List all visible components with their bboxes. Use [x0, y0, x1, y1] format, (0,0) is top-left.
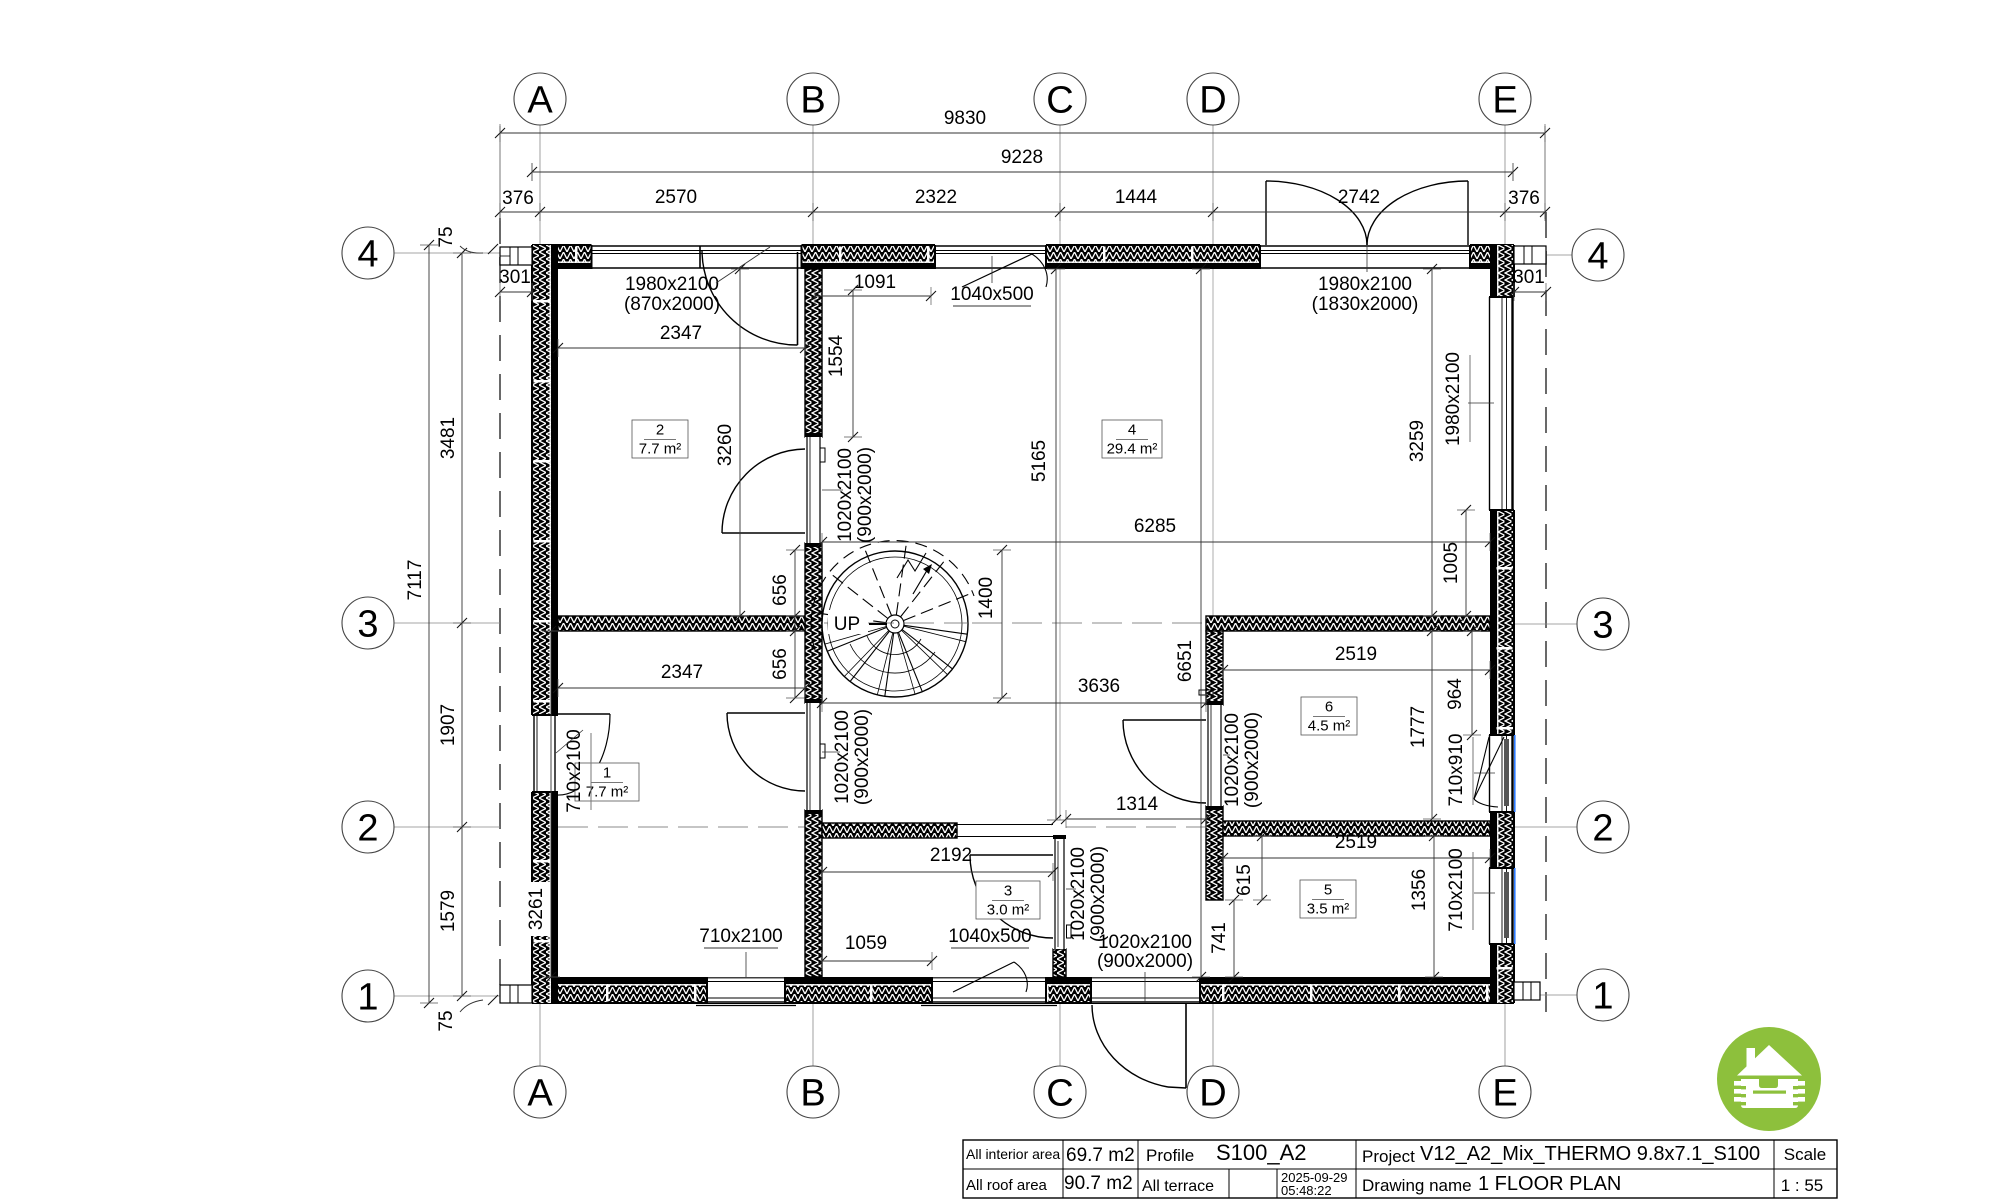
- svg-text:3259: 3259: [1407, 420, 1428, 462]
- svg-text:V12_A2_Mix_THERMO 9.8x7.1_S100: V12_A2_Mix_THERMO 9.8x7.1_S100: [1420, 1143, 1760, 1165]
- svg-text:2347: 2347: [661, 662, 703, 683]
- svg-text:(870x2000): (870x2000): [624, 294, 720, 315]
- svg-text:All roof area: All roof area: [966, 1177, 1048, 1194]
- svg-text:1 : 55: 1 : 55: [1781, 1176, 1824, 1195]
- svg-text:Drawing name: Drawing name: [1362, 1176, 1472, 1195]
- svg-text:(1830x2000): (1830x2000): [1312, 294, 1419, 315]
- svg-text:5: 5: [1324, 882, 1332, 899]
- svg-text:1020x2100: 1020x2100: [1222, 713, 1243, 807]
- svg-text:3: 3: [1592, 604, 1613, 646]
- svg-text:1444: 1444: [1115, 187, 1158, 208]
- svg-text:4: 4: [357, 233, 378, 275]
- svg-text:B: B: [800, 1072, 825, 1114]
- svg-text:UP: UP: [834, 614, 860, 635]
- svg-text:1: 1: [357, 976, 378, 1018]
- svg-text:1005: 1005: [1441, 542, 1462, 584]
- svg-text:3481: 3481: [438, 417, 459, 459]
- svg-text:9228: 9228: [1001, 147, 1043, 168]
- svg-text:1: 1: [603, 765, 611, 782]
- svg-text:75: 75: [436, 226, 457, 247]
- svg-text:Scale: Scale: [1784, 1145, 1827, 1164]
- svg-text:1980x2100: 1980x2100: [625, 274, 719, 295]
- svg-text:7.7 m²: 7.7 m²: [586, 784, 629, 801]
- svg-text:1907: 1907: [438, 704, 459, 746]
- svg-text:2322: 2322: [915, 187, 957, 208]
- svg-text:3636: 3636: [1078, 676, 1120, 697]
- svg-text:05:48:22: 05:48:22: [1281, 1183, 1332, 1198]
- svg-text:7117: 7117: [405, 560, 426, 601]
- svg-text:1020x2100: 1020x2100: [1068, 847, 1089, 941]
- svg-text:1020x2100: 1020x2100: [832, 710, 853, 804]
- svg-text:4: 4: [1128, 422, 1136, 439]
- svg-text:1020x2100: 1020x2100: [1098, 932, 1192, 953]
- svg-text:1020x2100: 1020x2100: [835, 448, 856, 542]
- svg-text:656: 656: [770, 574, 791, 606]
- svg-text:75: 75: [436, 1010, 457, 1031]
- svg-text:1: 1: [1592, 975, 1613, 1017]
- svg-text:1 FLOOR PLAN: 1 FLOOR PLAN: [1478, 1173, 1621, 1195]
- svg-text:2570: 2570: [655, 187, 697, 208]
- svg-text:1040x500: 1040x500: [950, 284, 1033, 305]
- svg-text:3261: 3261: [526, 888, 547, 930]
- svg-text:5165: 5165: [1029, 440, 1050, 482]
- svg-text:1980x2100: 1980x2100: [1318, 274, 1412, 295]
- svg-text:2347: 2347: [660, 323, 702, 344]
- svg-text:D: D: [1199, 1072, 1226, 1114]
- svg-text:1980x2100: 1980x2100: [1443, 352, 1464, 446]
- svg-text:656: 656: [770, 648, 791, 680]
- svg-text:3: 3: [357, 603, 378, 645]
- svg-text:1314: 1314: [1116, 794, 1159, 815]
- svg-text:D: D: [1199, 79, 1226, 121]
- svg-text:710x2100: 710x2100: [1446, 848, 1467, 931]
- svg-text:(900x2000): (900x2000): [1242, 712, 1263, 808]
- svg-text:2: 2: [357, 807, 378, 849]
- svg-text:3260: 3260: [715, 424, 736, 466]
- svg-text:301: 301: [499, 267, 531, 288]
- svg-text:1040x500: 1040x500: [948, 926, 1031, 947]
- svg-text:741: 741: [1209, 922, 1230, 954]
- svg-text:C: C: [1046, 79, 1073, 121]
- svg-text:3.0 m²: 3.0 m²: [987, 902, 1030, 919]
- svg-text:3.5 m²: 3.5 m²: [1307, 901, 1350, 918]
- svg-text:376: 376: [502, 188, 534, 209]
- svg-text:1059: 1059: [845, 933, 887, 954]
- svg-text:1400: 1400: [976, 577, 997, 619]
- svg-text:1554: 1554: [826, 334, 847, 377]
- svg-text:A: A: [527, 1072, 553, 1114]
- svg-text:4.5 m²: 4.5 m²: [1308, 718, 1351, 735]
- svg-text:(900x2000): (900x2000): [1097, 951, 1193, 972]
- svg-text:29.4 m²: 29.4 m²: [1107, 441, 1158, 458]
- svg-text:(900x2000): (900x2000): [855, 447, 876, 543]
- svg-text:All terrace: All terrace: [1142, 1178, 1214, 1195]
- svg-text:1579: 1579: [438, 890, 459, 932]
- svg-text:615: 615: [1234, 864, 1255, 896]
- svg-text:2742: 2742: [1338, 187, 1380, 208]
- svg-text:376: 376: [1508, 188, 1540, 209]
- svg-text:4: 4: [1587, 235, 1608, 277]
- svg-text:1777: 1777: [1408, 706, 1429, 748]
- svg-text:Project: Project: [1362, 1147, 1415, 1166]
- svg-text:90.7 m2: 90.7 m2: [1064, 1173, 1133, 1194]
- svg-text:710x910: 710x910: [1446, 734, 1467, 807]
- svg-text:B: B: [800, 79, 825, 121]
- svg-text:2192: 2192: [930, 845, 972, 866]
- svg-text:2519: 2519: [1335, 644, 1377, 665]
- svg-text:(900x2000): (900x2000): [852, 709, 873, 805]
- svg-text:1356: 1356: [1409, 869, 1430, 911]
- svg-text:69.7 m2: 69.7 m2: [1066, 1145, 1135, 1166]
- svg-text:7.7 m²: 7.7 m²: [639, 441, 682, 458]
- svg-text:A: A: [527, 79, 553, 121]
- svg-text:301: 301: [1513, 267, 1545, 288]
- svg-text:C: C: [1046, 1072, 1073, 1114]
- svg-text:6285: 6285: [1134, 516, 1176, 537]
- svg-text:3: 3: [1004, 883, 1012, 900]
- svg-text:9830: 9830: [944, 108, 986, 129]
- svg-text:All interior area: All interior area: [966, 1146, 1060, 1162]
- svg-text:Profile: Profile: [1146, 1146, 1194, 1165]
- svg-text:E: E: [1492, 79, 1517, 121]
- svg-text:(900x2000): (900x2000): [1088, 846, 1109, 942]
- svg-text:710x2100: 710x2100: [699, 926, 782, 947]
- svg-text:6651: 6651: [1175, 640, 1196, 682]
- svg-text:S100_A2: S100_A2: [1216, 1140, 1307, 1165]
- svg-text:2: 2: [1592, 807, 1613, 849]
- svg-text:E: E: [1492, 1072, 1517, 1114]
- svg-text:710x2100: 710x2100: [564, 729, 585, 812]
- svg-text:6: 6: [1325, 699, 1333, 716]
- svg-text:964: 964: [1445, 678, 1466, 710]
- svg-text:2519: 2519: [1335, 832, 1377, 853]
- svg-text:2: 2: [656, 422, 664, 439]
